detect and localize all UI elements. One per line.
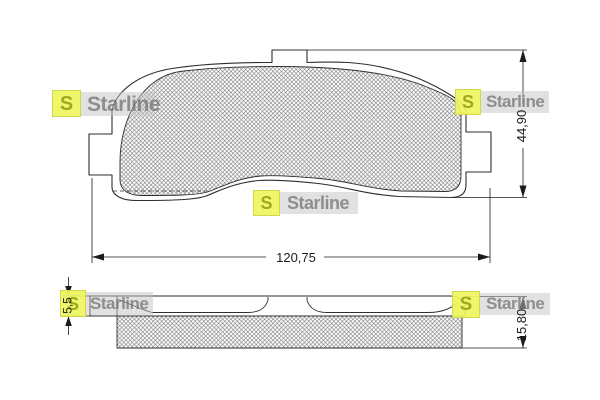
starline-logo-icon: S — [455, 89, 481, 115]
starline-logo-letter: S — [260, 194, 272, 212]
dimension-label-plate-thickness: 5,5 — [62, 291, 75, 321]
dimension-label-total-thickness: 15,80 — [515, 302, 529, 348]
starline-logo-icon: S — [52, 90, 81, 117]
arrowhead-left — [92, 254, 104, 261]
arrowhead-down — [520, 186, 527, 198]
watermark-brand-text: Starline — [90, 295, 148, 312]
starline-logo-letter: S — [460, 295, 473, 314]
starline-logo-icon: S — [452, 291, 480, 318]
brake-pad-drawing-page: S Starline S Starline S Starline S Starl… — [0, 0, 600, 400]
arrowhead-up — [520, 50, 527, 62]
arrowhead-right — [478, 254, 490, 261]
dimension-label-width: 120,75 — [268, 251, 324, 264]
watermark-brand-text: Starline — [87, 94, 160, 115]
side-view-friction-area — [117, 316, 462, 348]
top-view-friction-area — [120, 67, 461, 196]
watermark-brand-text: Starline — [287, 194, 349, 212]
starline-logo-icon: S — [253, 190, 280, 216]
dimension-label-height: 44,90 — [515, 103, 529, 149]
starline-logo-letter: S — [60, 94, 73, 114]
top-view — [89, 50, 491, 201]
starline-logo-letter: S — [462, 93, 474, 111]
